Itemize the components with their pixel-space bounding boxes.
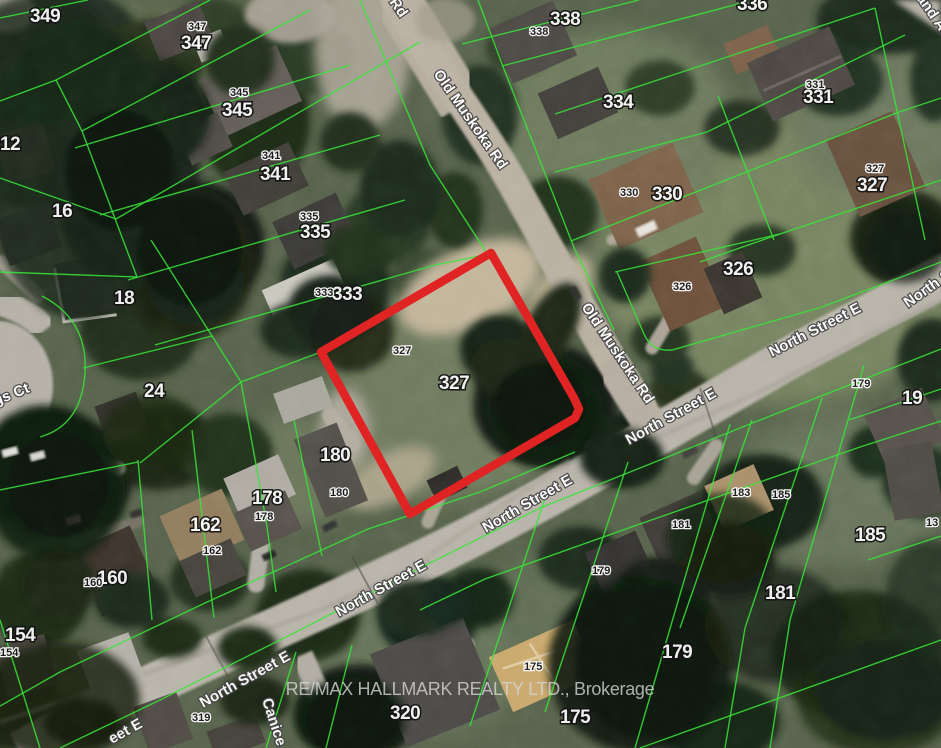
svg-text:338: 338 bbox=[550, 9, 580, 30]
svg-text:331: 331 bbox=[806, 79, 824, 91]
svg-text:12: 12 bbox=[0, 134, 20, 155]
svg-text:327: 327 bbox=[866, 163, 884, 175]
svg-text:185: 185 bbox=[855, 525, 886, 546]
svg-text:335: 335 bbox=[300, 222, 331, 243]
svg-text:19: 19 bbox=[902, 388, 922, 409]
svg-text:320: 320 bbox=[390, 703, 420, 724]
svg-text:18: 18 bbox=[114, 288, 134, 309]
svg-text:13: 13 bbox=[926, 517, 938, 529]
svg-text:RE/MAX HALLMARK REALTY LTD., B: RE/MAX HALLMARK REALTY LTD., Brokerage bbox=[286, 679, 655, 699]
svg-text:183: 183 bbox=[732, 487, 750, 499]
svg-text:333: 333 bbox=[332, 284, 362, 305]
svg-text:341: 341 bbox=[262, 150, 280, 162]
svg-text:175: 175 bbox=[524, 661, 542, 673]
svg-text:334: 334 bbox=[603, 92, 634, 113]
svg-text:162: 162 bbox=[203, 545, 221, 557]
svg-text:327: 327 bbox=[439, 373, 469, 394]
svg-text:335: 335 bbox=[300, 211, 318, 223]
svg-text:341: 341 bbox=[260, 164, 291, 185]
svg-text:162: 162 bbox=[190, 515, 220, 536]
svg-text:345: 345 bbox=[222, 100, 253, 121]
svg-text:175: 175 bbox=[560, 707, 591, 728]
svg-text:336: 336 bbox=[737, 0, 767, 15]
svg-text:330: 330 bbox=[652, 184, 682, 205]
svg-text:24: 24 bbox=[144, 381, 165, 402]
svg-text:178: 178 bbox=[252, 488, 282, 509]
svg-text:327: 327 bbox=[857, 175, 887, 196]
svg-text:185: 185 bbox=[772, 489, 790, 501]
svg-text:347: 347 bbox=[188, 21, 206, 33]
svg-text:179: 179 bbox=[852, 378, 870, 390]
svg-text:319: 319 bbox=[192, 712, 210, 724]
svg-text:330: 330 bbox=[620, 187, 638, 199]
svg-text:181: 181 bbox=[765, 583, 796, 604]
svg-text:338: 338 bbox=[530, 26, 548, 38]
svg-text:181: 181 bbox=[672, 519, 690, 531]
svg-text:154: 154 bbox=[0, 647, 19, 659]
svg-text:326: 326 bbox=[723, 259, 753, 280]
svg-text:180: 180 bbox=[320, 445, 350, 466]
svg-text:179: 179 bbox=[592, 565, 610, 577]
svg-text:326: 326 bbox=[673, 281, 691, 293]
svg-text:333: 333 bbox=[315, 287, 333, 299]
svg-text:16: 16 bbox=[52, 201, 72, 222]
svg-text:327: 327 bbox=[393, 345, 411, 357]
svg-text:154: 154 bbox=[5, 625, 36, 646]
svg-text:180: 180 bbox=[330, 487, 348, 499]
svg-text:160: 160 bbox=[84, 577, 102, 589]
svg-text:179: 179 bbox=[662, 642, 692, 663]
svg-text:178: 178 bbox=[255, 511, 273, 523]
svg-text:347: 347 bbox=[181, 33, 211, 54]
svg-text:349: 349 bbox=[30, 6, 60, 27]
svg-text:345: 345 bbox=[230, 87, 248, 99]
